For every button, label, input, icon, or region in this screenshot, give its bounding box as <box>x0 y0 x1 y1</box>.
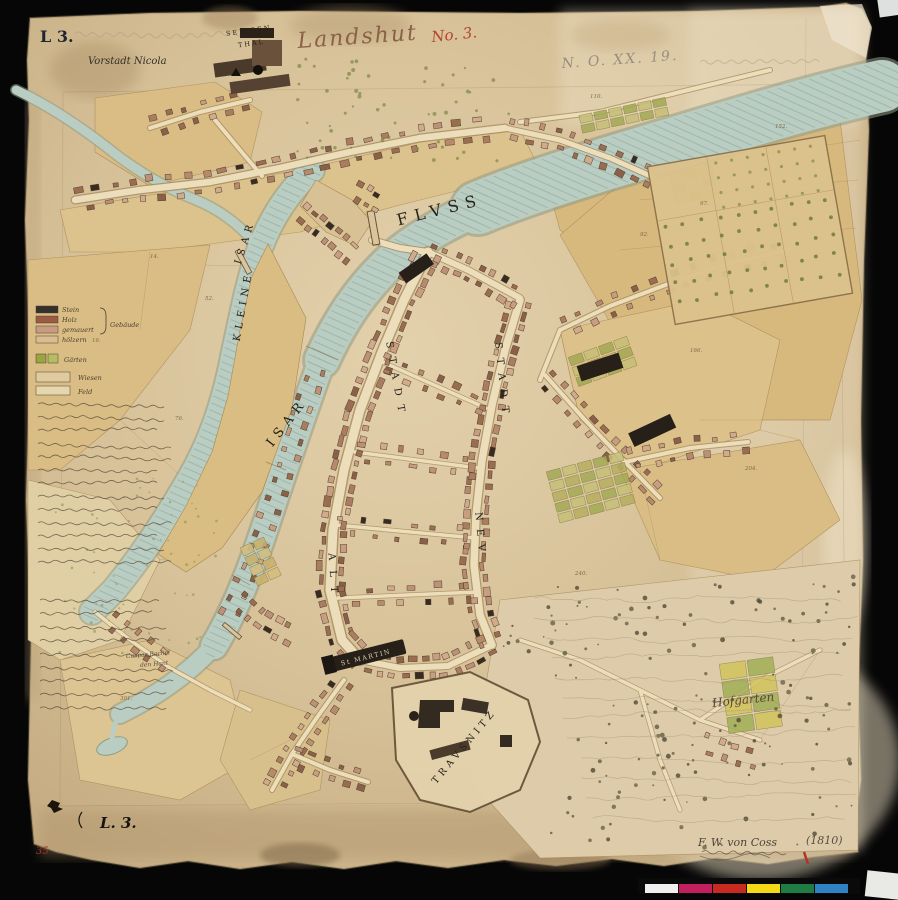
tree <box>704 672 707 675</box>
building <box>483 136 490 143</box>
building <box>362 425 369 431</box>
tree <box>458 122 461 125</box>
tree <box>842 642 846 646</box>
tree <box>456 157 459 160</box>
building <box>113 183 119 188</box>
tree <box>428 113 430 115</box>
building <box>387 672 394 678</box>
building <box>445 139 455 145</box>
plot-number: 97. <box>700 201 709 207</box>
tree <box>616 589 618 591</box>
tree <box>306 122 308 124</box>
building <box>340 531 347 538</box>
building <box>430 672 435 678</box>
meadow-tuft <box>191 503 193 505</box>
building <box>377 671 383 677</box>
building <box>462 523 469 530</box>
legend-swatch-gaerten2 <box>48 354 58 363</box>
tree <box>511 625 513 627</box>
scan-backdrop: St MARTIN FLVSS ISAR KLEINE ISAR STADT A… <box>0 0 898 900</box>
meadow-tuft <box>198 554 200 556</box>
tree <box>441 146 444 149</box>
tree <box>647 606 650 609</box>
meadow-tuft <box>197 515 200 518</box>
building <box>378 601 384 606</box>
cal-red <box>713 884 746 893</box>
tree <box>772 673 774 675</box>
building <box>195 190 202 194</box>
tree <box>333 146 336 149</box>
building <box>420 538 428 544</box>
meadow-tuft <box>214 555 217 558</box>
building <box>185 172 193 179</box>
tree <box>652 771 656 775</box>
tree <box>304 58 307 61</box>
building <box>397 600 404 606</box>
tree <box>848 626 850 628</box>
building <box>463 582 468 589</box>
building <box>440 451 449 459</box>
tree <box>687 763 690 766</box>
building <box>361 517 366 524</box>
building <box>471 439 479 447</box>
stamp-top-left: L 3. <box>40 27 74 46</box>
meadow-tuft <box>196 637 199 640</box>
building <box>469 473 476 480</box>
tree <box>703 797 708 802</box>
tree <box>546 605 550 609</box>
tree <box>629 607 634 612</box>
plot-number: 204. <box>744 466 757 472</box>
tree <box>554 629 556 631</box>
building <box>487 610 494 616</box>
tree <box>507 641 511 645</box>
building <box>277 462 282 467</box>
tree <box>718 585 722 589</box>
meadow-tuft <box>195 508 197 510</box>
tree <box>452 73 455 76</box>
building <box>177 193 185 199</box>
meadow-tuft <box>169 501 171 503</box>
tree <box>823 585 826 588</box>
tree <box>576 738 579 741</box>
plot-number: 110. <box>590 94 602 100</box>
legend-swatch-feld <box>36 386 70 395</box>
plot-number: 240. <box>574 571 587 577</box>
tree <box>597 644 599 646</box>
tree <box>507 113 510 116</box>
building <box>656 460 663 467</box>
building <box>373 534 378 538</box>
building <box>468 607 473 613</box>
tree <box>811 813 814 816</box>
plot-number: 92. <box>640 232 649 238</box>
tree <box>516 639 520 643</box>
meadow-tuft <box>215 520 218 523</box>
tree <box>672 752 675 755</box>
building <box>367 589 373 594</box>
building <box>364 460 370 465</box>
tree <box>852 582 856 586</box>
meadow-tuft <box>121 652 124 655</box>
plot-number: 152. <box>775 124 787 130</box>
label-vorstadt-nicola: Vorstadt Nicola <box>88 56 167 67</box>
meadow-tuft <box>91 513 94 516</box>
tree <box>656 616 659 619</box>
tree <box>562 651 567 656</box>
building <box>411 524 418 528</box>
tree <box>676 773 681 778</box>
tree <box>806 696 809 699</box>
tree <box>662 766 665 769</box>
tree <box>390 157 392 159</box>
tree <box>727 741 731 745</box>
plot-number: 166. <box>690 348 702 354</box>
building <box>468 463 476 473</box>
tree <box>605 775 607 777</box>
tree <box>774 707 777 710</box>
building <box>340 544 347 552</box>
building <box>392 148 400 154</box>
building <box>479 562 484 571</box>
building <box>354 461 359 467</box>
building <box>488 471 492 479</box>
building <box>345 508 350 515</box>
tree <box>584 647 587 650</box>
building <box>408 656 417 662</box>
tree <box>796 843 798 845</box>
meadow-tuft <box>55 511 57 513</box>
tree <box>601 826 605 830</box>
corner-card-top-right <box>877 0 898 18</box>
building <box>465 486 471 494</box>
meadow-tuft <box>152 478 153 479</box>
building <box>140 195 146 201</box>
tree <box>736 718 741 723</box>
tree <box>804 719 808 723</box>
tree <box>743 816 748 821</box>
tree <box>837 590 840 593</box>
building <box>434 581 442 588</box>
tree <box>576 605 578 607</box>
tree <box>730 600 734 604</box>
building <box>463 509 471 519</box>
stamp-bottom-left: L. 3. <box>99 814 137 832</box>
tree <box>354 155 357 158</box>
building <box>181 107 187 113</box>
tree <box>557 586 559 588</box>
tree <box>638 758 640 760</box>
tree <box>475 109 478 112</box>
legend-swatch-stein <box>36 306 58 313</box>
meadow-tuft <box>152 538 155 541</box>
building <box>518 324 525 331</box>
building <box>345 497 353 506</box>
tree <box>679 825 683 829</box>
tree <box>691 744 693 746</box>
tree <box>350 60 354 64</box>
tree <box>786 690 791 695</box>
tree <box>643 596 648 601</box>
tree <box>550 832 553 835</box>
meadow-tuft <box>93 551 95 553</box>
cal-green <box>781 884 814 893</box>
building <box>90 184 99 191</box>
tree <box>606 837 610 841</box>
tree <box>437 140 440 143</box>
tree <box>347 72 351 76</box>
tree <box>567 796 571 800</box>
meadow-tuft <box>71 567 74 570</box>
tree <box>674 707 678 711</box>
tree <box>306 156 308 158</box>
building <box>215 187 222 193</box>
tree <box>788 619 792 623</box>
tree <box>586 606 588 608</box>
building <box>325 146 332 152</box>
building <box>394 537 399 542</box>
meadow-tuft <box>170 553 172 555</box>
tree <box>608 723 611 726</box>
meadow-tuft <box>184 521 187 524</box>
building <box>463 456 468 461</box>
building <box>346 138 354 146</box>
tree <box>394 121 397 124</box>
building <box>469 452 476 460</box>
building <box>463 137 472 144</box>
building <box>486 596 492 605</box>
tree <box>769 745 771 747</box>
tree <box>424 66 428 70</box>
building <box>396 656 404 663</box>
building <box>466 596 471 604</box>
historic-map: St MARTIN FLVSS ISAR KLEINE ISAR STADT A… <box>0 0 898 900</box>
meadow-tuft <box>167 540 169 542</box>
meadow-tuft <box>101 604 104 607</box>
meadow-tuft <box>108 620 109 621</box>
tree <box>296 150 298 152</box>
building <box>418 124 424 131</box>
meadow-tuft <box>146 564 148 566</box>
tree <box>352 105 354 107</box>
building <box>388 586 395 590</box>
building <box>145 174 153 182</box>
tree <box>813 583 815 585</box>
tree <box>550 615 552 617</box>
meadow-tuft <box>113 575 115 577</box>
tree <box>851 805 853 807</box>
plot-number: 52. <box>205 296 214 302</box>
building <box>484 505 489 515</box>
tree <box>801 612 805 616</box>
building <box>429 467 436 473</box>
building <box>398 445 403 452</box>
surveyor-signature: F. W. von Coss <box>697 836 777 849</box>
building <box>399 132 405 137</box>
tree <box>815 743 818 746</box>
corner-card-bottom-right <box>865 870 898 899</box>
building <box>415 672 424 679</box>
tree <box>588 838 592 842</box>
building <box>281 446 287 452</box>
building <box>670 457 675 462</box>
building <box>488 461 495 469</box>
tree <box>355 59 359 63</box>
tree <box>773 607 776 610</box>
tree <box>605 742 607 744</box>
building <box>267 176 275 183</box>
tree <box>851 574 856 579</box>
tree <box>778 714 783 719</box>
tree <box>649 657 652 660</box>
tree <box>466 90 470 94</box>
tree <box>297 64 301 68</box>
tree <box>753 739 757 743</box>
building <box>357 442 366 448</box>
tree <box>789 684 792 687</box>
tree <box>387 135 391 139</box>
tree <box>643 631 648 636</box>
meadow-tuft <box>199 636 201 638</box>
meadow-tuft <box>136 494 139 497</box>
tree <box>350 146 352 148</box>
tree <box>462 151 465 154</box>
meadow-tuft <box>93 630 96 633</box>
tree <box>662 737 667 742</box>
building <box>474 429 481 436</box>
building <box>338 557 344 564</box>
tree <box>344 112 347 115</box>
tree <box>381 138 385 142</box>
tree <box>549 640 554 645</box>
tree <box>503 645 505 647</box>
building <box>464 543 470 549</box>
tree <box>781 617 785 621</box>
cal-yellow <box>747 884 780 893</box>
building <box>287 473 294 480</box>
plot-number: 14. <box>150 254 159 260</box>
meadow-tuft <box>174 592 176 594</box>
tree <box>444 111 448 115</box>
building <box>659 443 665 448</box>
building <box>463 533 468 542</box>
meadow-tuft <box>148 632 150 634</box>
tree <box>827 728 830 731</box>
tree <box>527 649 531 653</box>
building <box>417 449 424 455</box>
meadow-tuft <box>118 627 120 629</box>
building <box>236 164 244 169</box>
tree <box>354 89 358 93</box>
tree <box>376 108 380 112</box>
legend-label-gaerten: Gärten <box>64 356 87 364</box>
tree <box>663 604 667 608</box>
tree <box>756 598 760 602</box>
building <box>422 656 429 662</box>
meadow-tuft <box>193 561 195 563</box>
meadow-tuft <box>148 491 150 493</box>
building <box>157 194 165 201</box>
tree <box>613 705 615 707</box>
building <box>383 519 391 524</box>
tree <box>455 100 458 103</box>
building <box>407 586 415 591</box>
building <box>450 468 456 474</box>
tree <box>618 790 621 793</box>
cal-magenta <box>679 884 712 893</box>
tree <box>835 805 837 807</box>
tree <box>612 805 616 809</box>
tree <box>625 622 629 626</box>
tree <box>367 74 371 78</box>
meadow-tuft <box>93 572 95 574</box>
meadow-tuft <box>128 520 130 522</box>
building <box>471 598 478 604</box>
tree <box>598 759 602 763</box>
tree <box>809 697 812 700</box>
tree <box>296 98 299 101</box>
legend-swatch-wiesen <box>36 372 70 382</box>
tree <box>555 674 557 676</box>
building <box>459 583 464 589</box>
meadow-tuft <box>197 485 198 486</box>
building <box>323 495 331 507</box>
tree <box>692 643 696 647</box>
tree <box>694 770 697 773</box>
legend-label-hoelzern: hölzern <box>62 336 87 344</box>
tree <box>683 623 686 626</box>
meadow-tuft <box>136 478 139 481</box>
tree <box>319 139 322 142</box>
meadow-tuft <box>168 639 170 641</box>
tree <box>464 67 466 69</box>
building <box>403 673 410 678</box>
building <box>129 179 137 186</box>
legend-label-holz: Holz <box>61 316 78 324</box>
tree <box>346 77 349 80</box>
tree <box>321 146 325 150</box>
tree <box>495 159 498 162</box>
legend-group-label: Gebäude <box>110 321 139 329</box>
tree <box>822 714 825 717</box>
building <box>694 435 700 441</box>
tree <box>578 601 581 604</box>
tree <box>660 733 665 738</box>
tree <box>298 83 301 86</box>
tree <box>655 725 660 730</box>
signature-year: (1810) <box>806 834 843 847</box>
building <box>319 550 324 558</box>
plot-number: 76. <box>175 416 184 422</box>
meadow-tuft <box>122 603 124 605</box>
building <box>322 536 326 544</box>
meadow-tuft <box>186 594 188 596</box>
tree <box>714 583 717 586</box>
plot-number: 301. <box>120 696 132 702</box>
legend-label-feld: Feld <box>77 388 92 396</box>
tree <box>509 635 511 637</box>
building <box>636 463 641 468</box>
tree <box>382 103 385 106</box>
tree <box>700 698 702 700</box>
tree <box>667 648 671 652</box>
tree <box>491 78 495 82</box>
tree <box>652 784 654 786</box>
building <box>321 511 329 518</box>
tree <box>575 586 579 590</box>
tree <box>432 158 436 162</box>
building <box>425 599 431 605</box>
